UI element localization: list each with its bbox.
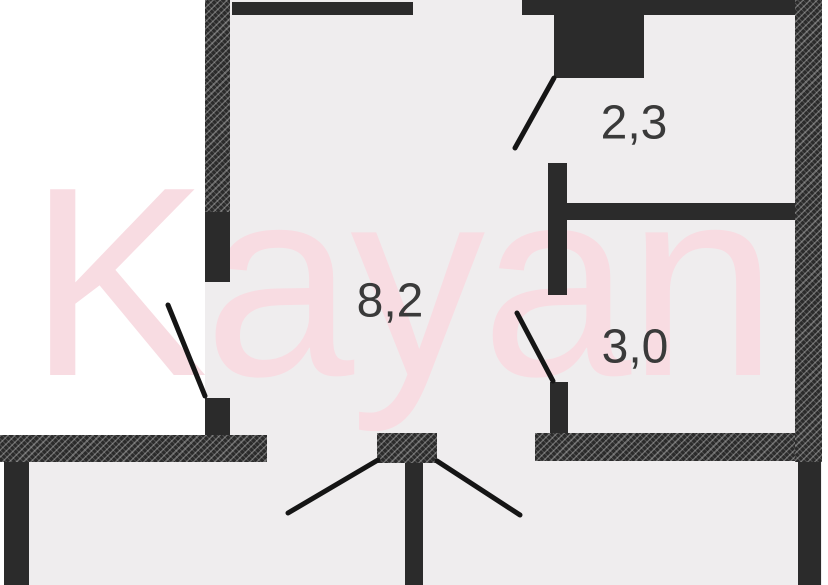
right-exterior-wall-hatched (795, 0, 822, 462)
lower-left-vertical-wall (4, 462, 29, 585)
bathroom-left-wall-stub (550, 382, 568, 433)
left-interior-wall-stub (205, 398, 230, 435)
floorplan-canvas: Kayan 2,3 8,2 3,0 (0, 0, 828, 585)
top-wall-left (232, 2, 413, 15)
lower-right-vertical-wall (798, 462, 821, 585)
bottom-left-wall-hatched (0, 435, 267, 462)
room-area-label-2-3: 2,3 (601, 96, 668, 151)
left-interior-wall-upper (205, 212, 230, 282)
bottom-right-wall-hatched (535, 433, 795, 461)
center-partition-wall (405, 461, 423, 585)
left-exterior-wall-hatched (205, 0, 230, 212)
room-divider-wall (561, 203, 795, 220)
room-area-label-8-2: 8,2 (357, 274, 424, 329)
center-wall-block-hatched (377, 433, 437, 463)
room-area-label-3-0: 3,0 (602, 320, 669, 375)
bathroom-left-wall-upper (548, 163, 567, 295)
vent-duct-block (554, 13, 644, 78)
